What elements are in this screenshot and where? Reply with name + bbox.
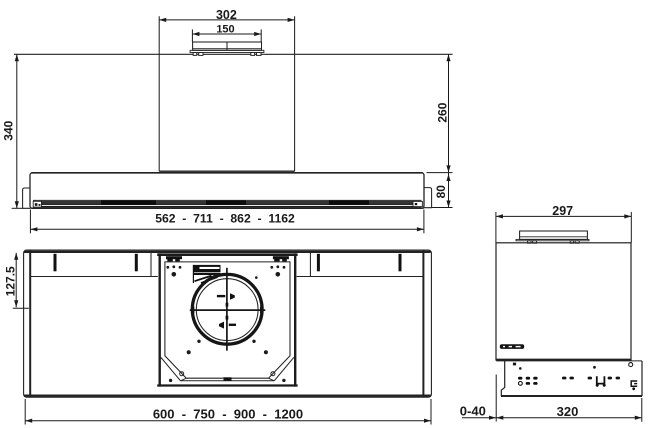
svg-text:0-40: 0-40 [460,404,486,419]
svg-text:562 - 711 - 862 - 1162: 562 - 711 - 862 - 1162 [155,211,295,225]
svg-text:260: 260 [435,102,449,122]
svg-text:80: 80 [434,185,448,199]
svg-text:297: 297 [552,204,573,218]
svg-text:600 - 750 - 900 - 1200: 600 - 750 - 900 - 1200 [153,406,303,421]
svg-text:127.5: 127.5 [4,266,18,296]
svg-text:302: 302 [216,8,237,22]
svg-text:150: 150 [216,24,234,36]
svg-text:320: 320 [557,404,579,419]
svg-text:340: 340 [1,120,15,140]
